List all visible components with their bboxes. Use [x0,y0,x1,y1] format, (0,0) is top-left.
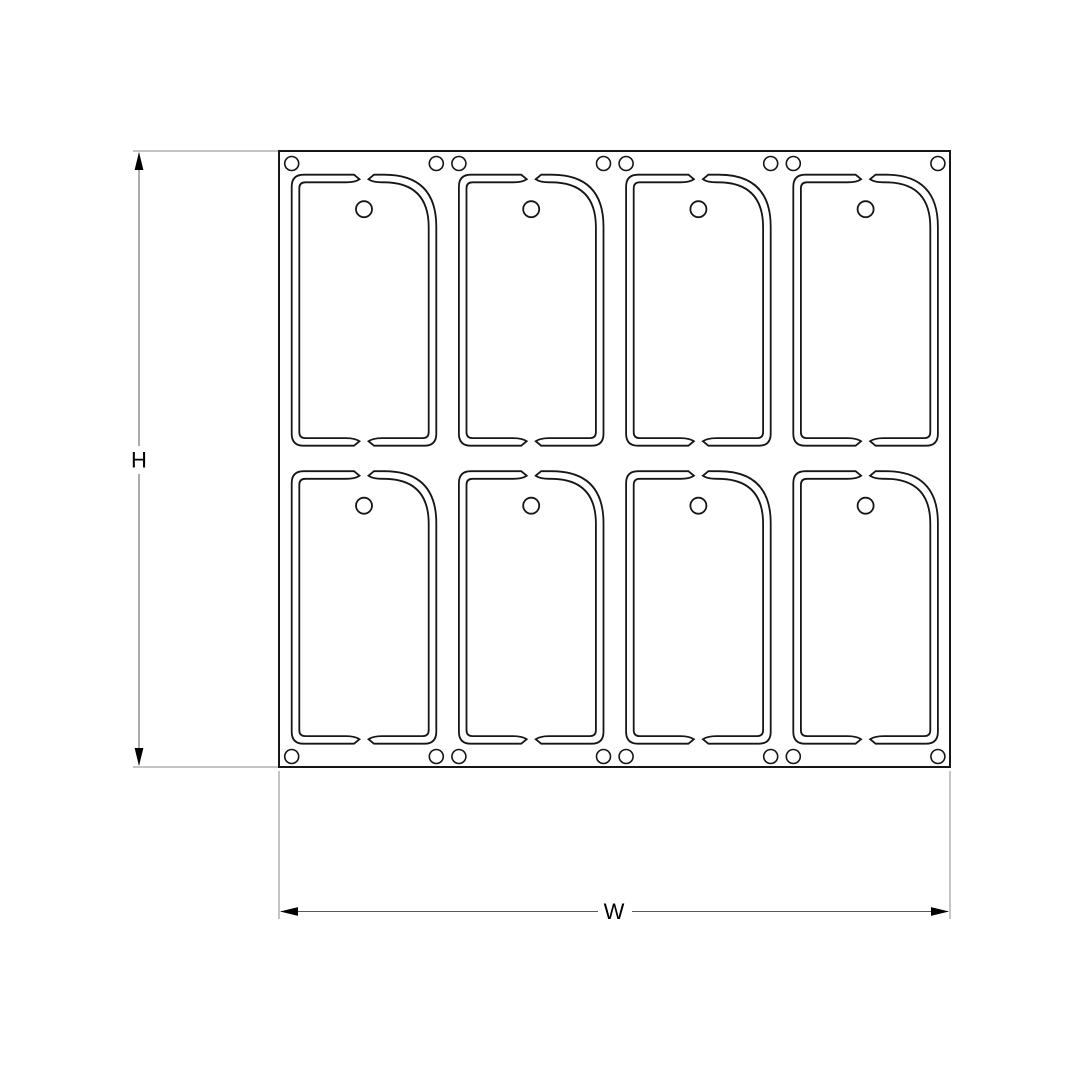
edge-hole-top [285,157,299,171]
edge-hole-bottom [786,750,800,764]
edge-hole-top [619,157,633,171]
tag-hang-hole [356,498,372,514]
width-arrow-left [280,907,298,916]
edge-hole-top [452,157,466,171]
tag-hang-hole [523,498,539,514]
drawing-canvas: H W [0,0,1080,1080]
width-dimension-label: W [604,899,625,924]
edge-hole-top [429,157,443,171]
width-arrow-right [931,907,949,916]
panel-outline [279,151,950,767]
edge-hole-top [931,157,945,171]
tag-hang-hole [523,201,539,217]
edge-hole-bottom [429,750,443,764]
edge-hole-bottom [931,750,945,764]
tag-hang-hole [690,201,706,217]
edge-hole-bottom [619,750,633,764]
edge-hole-bottom [764,750,778,764]
height-dimension: H [131,151,278,767]
tag-hang-hole [858,201,874,217]
edge-hole-bottom [285,750,299,764]
height-arrow-down [135,748,144,766]
tag-hang-hole [858,498,874,514]
tag-hang-hole [356,201,372,217]
edge-hole-bottom [597,750,611,764]
height-dimension-label: H [131,448,147,473]
edge-hole-top [597,157,611,171]
edge-hole-bottom [452,750,466,764]
tag-hang-hole [690,498,706,514]
edge-hole-top [764,157,778,171]
edge-hole-top [786,157,800,171]
width-dimension: W [279,771,950,924]
technical-drawing: H W [0,0,1080,1080]
height-arrow-up [135,152,144,170]
